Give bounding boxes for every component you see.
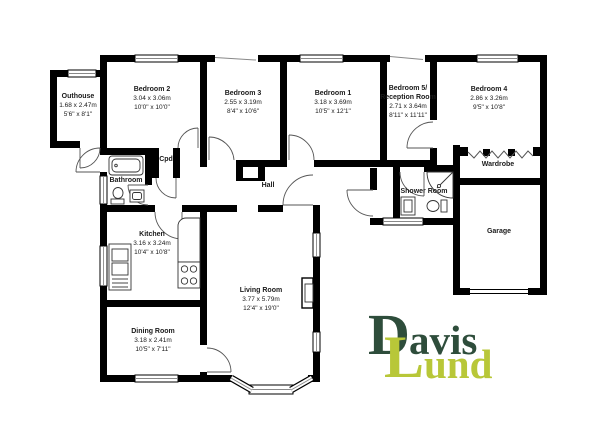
room-label-living-room: Living Room 3.77 x 5.79m 12'4" x 19'0"	[240, 286, 282, 313]
room-label-kitchen: Kitchen 3.16 x 3.24m 10'4" x 10'8"	[133, 230, 171, 257]
kitchen-sink-unit	[109, 244, 131, 290]
bedroom5-door	[407, 122, 433, 148]
room-label-bedroom3: Bedroom 3 2.55 x 3.19m 8'4" x 10'6"	[224, 89, 262, 116]
room-label-bedroom1: Bedroom 1 3.18 x 3.69m 10'5" x 12'1"	[314, 89, 352, 116]
living-room-door	[283, 175, 313, 205]
bathroom-basin	[130, 190, 144, 202]
room-label-garage: Garage	[487, 227, 511, 236]
logo-initial-lund: L	[384, 327, 424, 387]
room-label-dining-room: Dining Room 3.18 x 2.41m 10'5" x 7'11"	[131, 327, 175, 354]
dining-living-door	[207, 348, 231, 372]
room-label-bedroom5: Bedroom 5/ Reception Room 2.71 x 3.64m 8…	[380, 84, 436, 120]
room-label-wardrobe: Wardrobe	[482, 160, 514, 169]
bathtub	[109, 156, 143, 175]
logo-text-lund: und	[424, 344, 492, 385]
bedroom3-door	[209, 137, 234, 160]
shower-basin	[401, 197, 415, 215]
room-label-bathroom: Bathroom	[109, 176, 142, 185]
room-label-outhouse: Outhouse 1.68 x 2.47m 5'6" x 8'1"	[59, 92, 97, 119]
fireplace	[302, 278, 313, 308]
bedroom2-door	[178, 128, 198, 148]
room-label-bedroom4: Bedroom 4 2.86 x 3.26m 9'5" x 10'8"	[470, 85, 508, 112]
floorplan-drawing	[0, 0, 600, 436]
shower-toilet	[427, 200, 447, 212]
bedroom1-door	[289, 135, 314, 160]
cpd-door	[156, 178, 176, 198]
room-label-shower-room: Shower Room	[400, 187, 447, 196]
rear-door	[347, 190, 373, 216]
wardrobe-rail	[468, 151, 533, 158]
cooker	[178, 218, 200, 288]
closet	[236, 167, 265, 181]
garage-door	[470, 288, 528, 295]
room-label-bedroom2: Bedroom 2 3.04 x 3.06m 10'0" x 10'0"	[133, 85, 171, 112]
room-label-hall: Hall	[262, 181, 275, 190]
floorplan-page: Outhouse 1.68 x 2.47m 5'6" x 8'1" Bedroo…	[0, 0, 600, 436]
bathroom-toilet	[111, 188, 124, 205]
outhouse-door	[80, 148, 100, 168]
room-label-cpd: Cpd	[159, 155, 173, 164]
